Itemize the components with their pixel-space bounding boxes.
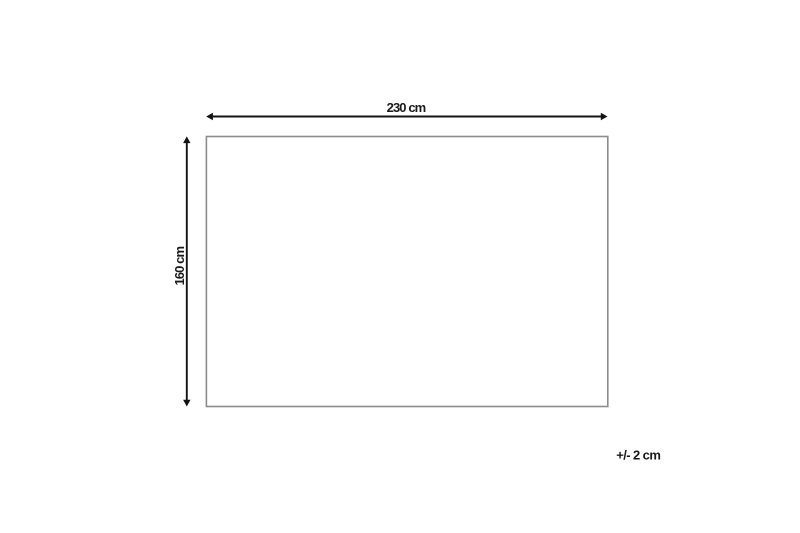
svg-text:230 cm: 230 cm [387, 100, 426, 115]
svg-text:160 cm: 160 cm [172, 247, 187, 286]
svg-text:+/- 2 cm: +/- 2 cm [616, 448, 660, 463]
